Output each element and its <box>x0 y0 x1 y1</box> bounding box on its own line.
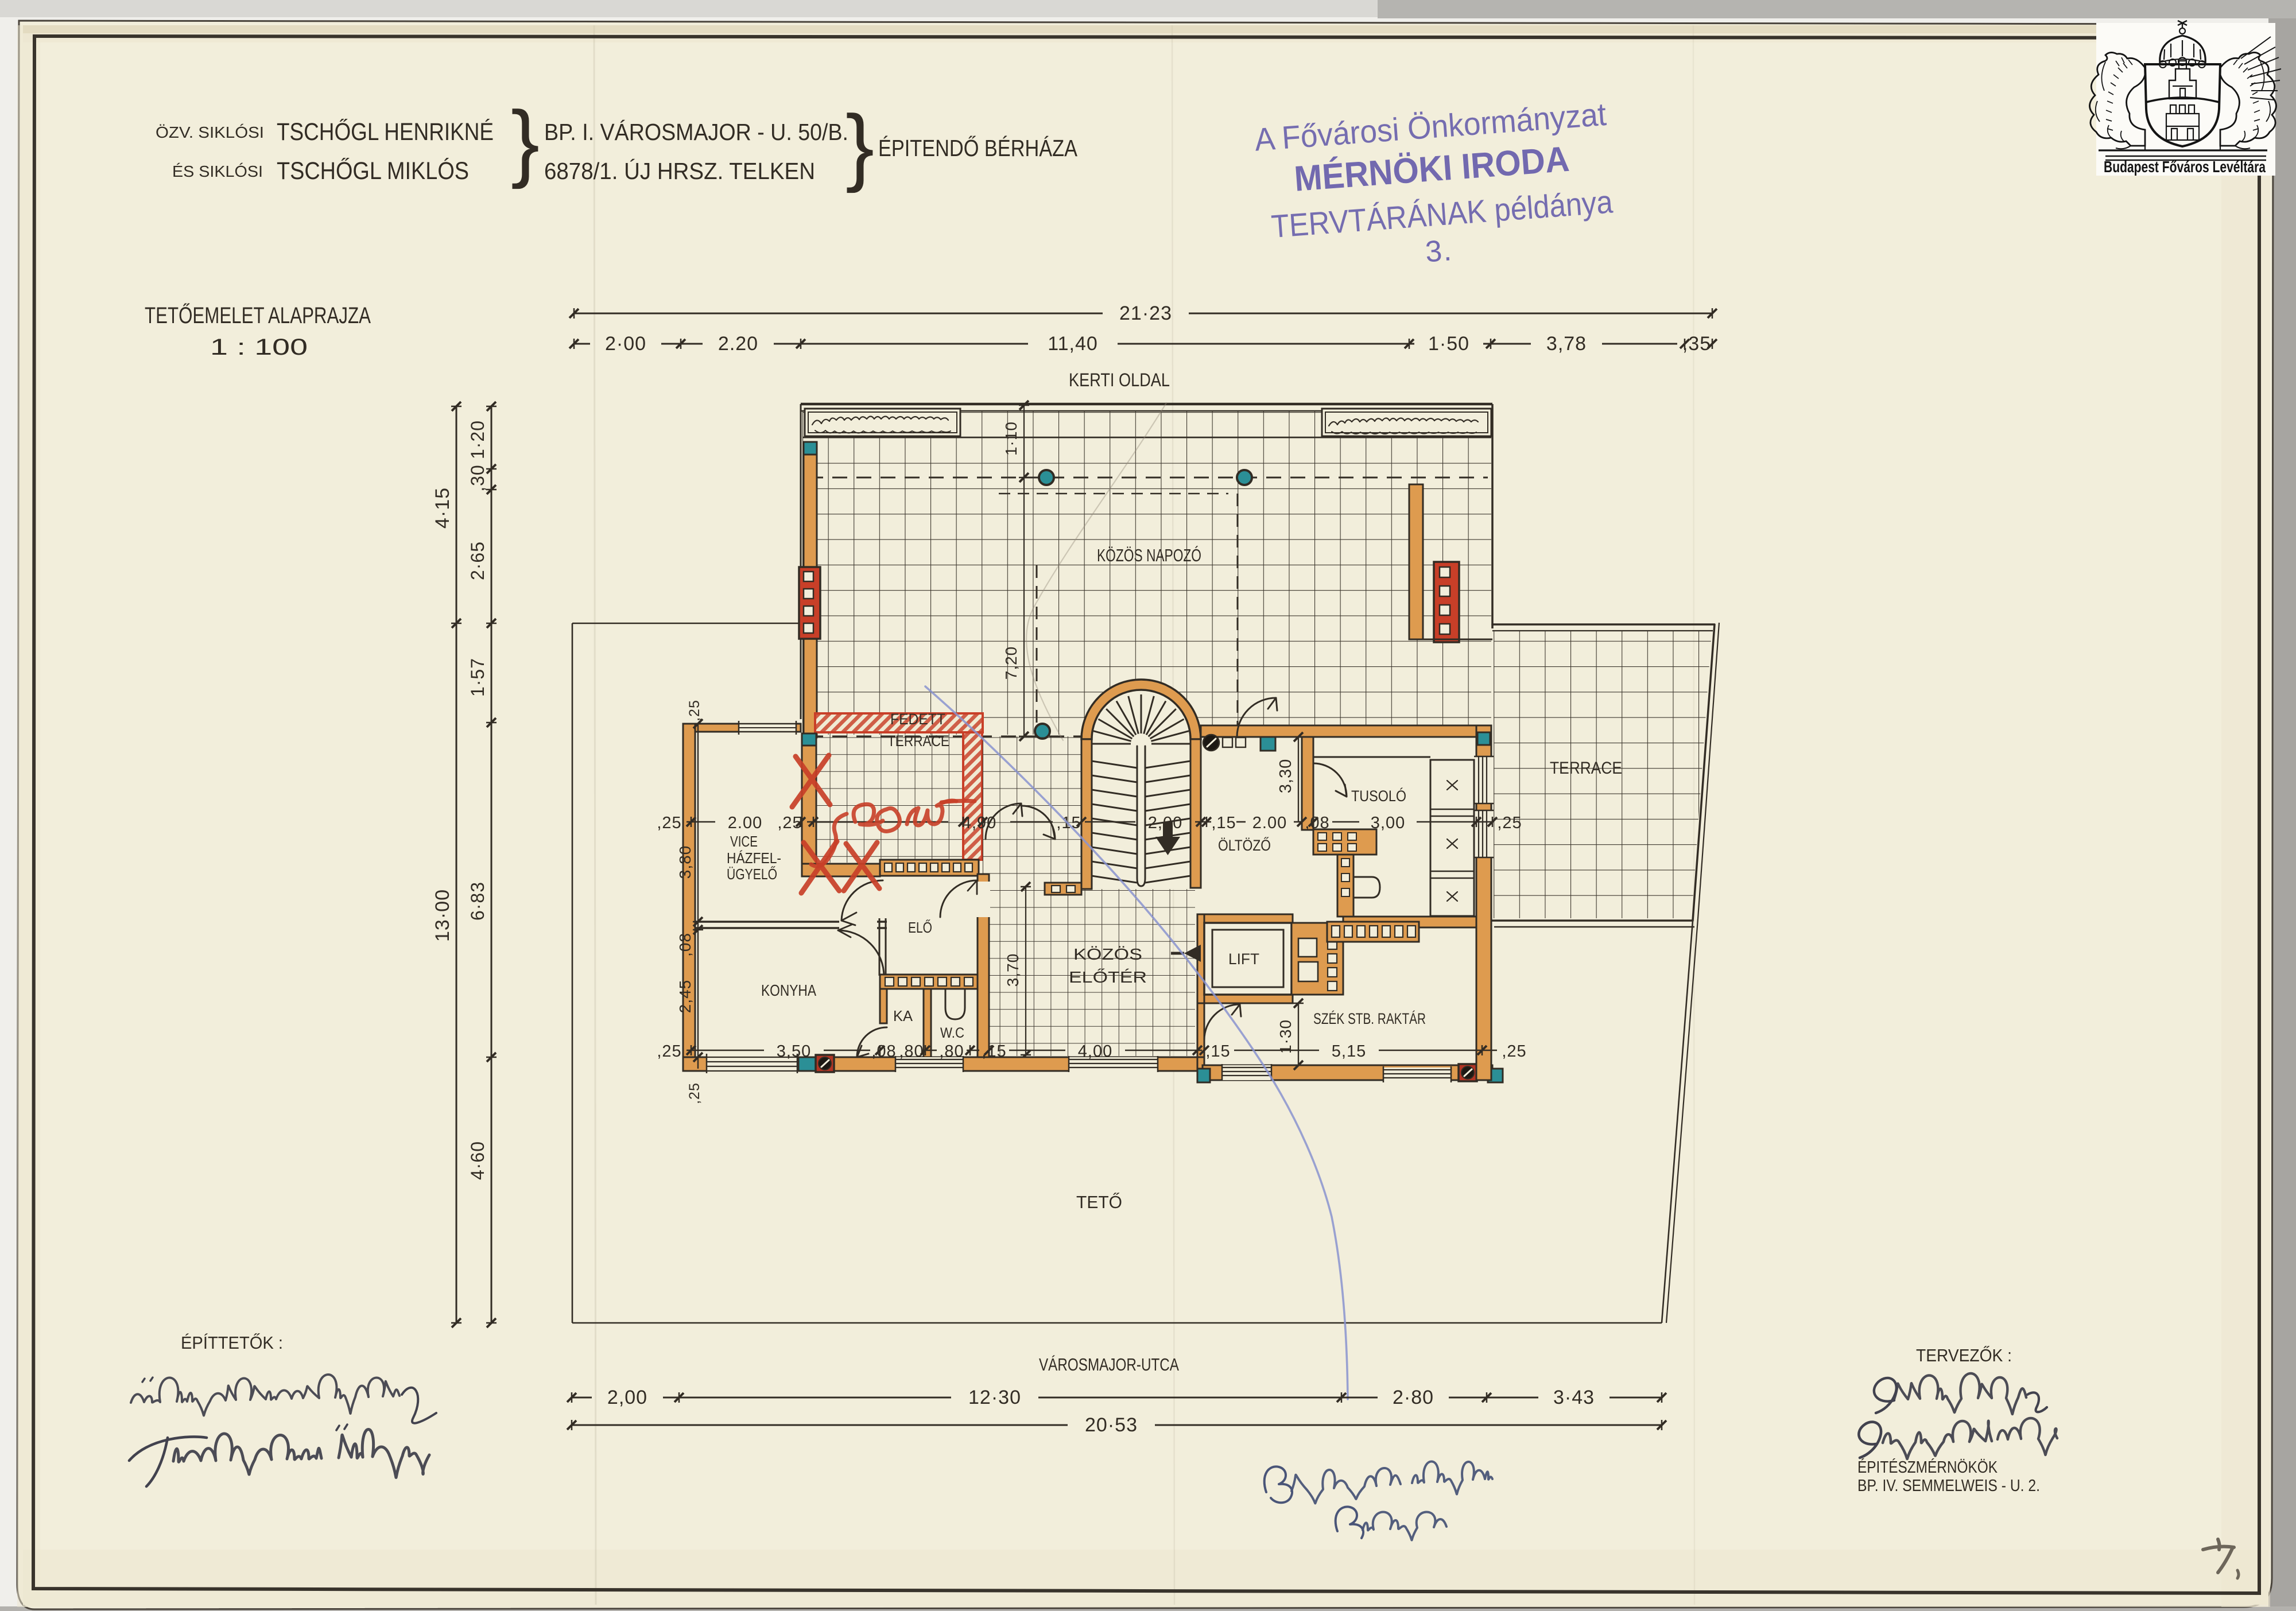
svg-text:ÉS SIKLÓSI: ÉS SIKLÓSI <box>172 162 263 180</box>
svg-text:KONYHA: KONYHA <box>761 981 816 999</box>
svg-text:ÖZV. SIKLÓSI: ÖZV. SIKLÓSI <box>156 123 264 141</box>
svg-text:,25: ,25 <box>1497 814 1522 832</box>
svg-text:,08: ,08 <box>871 1042 896 1061</box>
svg-text:BP. I. VÁROSMAJOR - U. 50/B.: BP. I. VÁROSMAJOR - U. 50/B. <box>544 119 848 145</box>
svg-text:4·15: 4·15 <box>432 487 453 529</box>
svg-text:}: } <box>846 97 874 193</box>
svg-text:5,15: 5,15 <box>1332 1042 1366 1061</box>
svg-text:,25: ,25 <box>657 1042 681 1061</box>
svg-text:ÜGYELŐ: ÜGYELŐ <box>727 865 777 883</box>
svg-text:3,70: 3,70 <box>1004 953 1022 987</box>
svg-text:ELŐTÉR: ELŐTÉR <box>1069 968 1147 986</box>
svg-text:,35: ,35 <box>1682 333 1711 355</box>
svg-text:2.20: 2.20 <box>718 333 758 355</box>
svg-text:21·23: 21·23 <box>1119 302 1172 324</box>
svg-text:KÖZÖS NAPOZÓ: KÖZÖS NAPOZÓ <box>1097 545 1201 565</box>
svg-text:TETŐEMELET ALAPRAJZA: TETŐEMELET ALAPRAJZA <box>145 302 371 328</box>
svg-text:6878/1. ÚJ HRSZ. TELKEN: 6878/1. ÚJ HRSZ. TELKEN <box>544 158 815 184</box>
svg-text:ELŐ: ELŐ <box>908 919 932 936</box>
svg-text:,08: ,08 <box>1305 814 1329 832</box>
svg-text:,25: ,25 <box>687 1082 703 1104</box>
svg-text:,08: ,08 <box>676 933 694 957</box>
svg-text:7,20: 7,20 <box>1002 646 1020 680</box>
svg-text:HÁZFEL-: HÁZFEL- <box>727 849 781 867</box>
svg-text:KÖZÖS: KÖZÖS <box>1073 945 1142 963</box>
svg-text:3,80: 3,80 <box>676 845 694 879</box>
svg-text:LIFT: LIFT <box>1228 950 1259 968</box>
svg-text:BP. IV. SEMMELWEIS - U. 2.: BP. IV. SEMMELWEIS - U. 2. <box>1857 1477 2040 1495</box>
svg-text:,25: ,25 <box>1502 1042 1526 1061</box>
svg-text:2,00: 2,00 <box>607 1387 647 1408</box>
svg-text:,80: ,80 <box>899 1042 924 1061</box>
svg-text:1·20: 1·20 <box>467 420 488 459</box>
svg-text:,25: ,25 <box>657 814 681 832</box>
svg-text:TETŐ: TETŐ <box>1076 1192 1122 1212</box>
svg-text:,30: ,30 <box>467 464 488 491</box>
svg-text:ÉPITÉSZMÉRNÖKÖK: ÉPITÉSZMÉRNÖKÖK <box>1857 1458 1998 1477</box>
svg-text:2,00: 2,00 <box>1148 814 1182 832</box>
svg-text:TERRACE: TERRACE <box>887 732 949 750</box>
svg-text:2,45: 2,45 <box>676 980 694 1014</box>
svg-text:2·80: 2·80 <box>1393 1387 1434 1408</box>
svg-text:2·65: 2·65 <box>467 541 488 580</box>
svg-text:KERTI OLDAL: KERTI OLDAL <box>1069 370 1170 390</box>
svg-text:VÁROSMAJOR-UTCA: VÁROSMAJOR-UTCA <box>1039 1354 1179 1375</box>
svg-text:1·50: 1·50 <box>1428 333 1469 355</box>
svg-text:2.00: 2.00 <box>728 814 762 832</box>
svg-text:TSCHŐGL HENRIKNÉ: TSCHŐGL HENRIKNÉ <box>277 118 494 146</box>
svg-text:6·83: 6·83 <box>467 882 488 921</box>
svg-text:,25: ,25 <box>687 700 703 721</box>
svg-text:SZÉK STB. RAKTÁR: SZÉK STB. RAKTÁR <box>1313 1010 1426 1027</box>
svg-text:1·30: 1·30 <box>1277 1019 1294 1054</box>
svg-text:3,30: 3,30 <box>1277 759 1295 793</box>
svg-text:1·57: 1·57 <box>467 658 488 697</box>
svg-text:ÉPITENDŐ BÉRHÁZA: ÉPITENDŐ BÉRHÁZA <box>878 135 1078 161</box>
svg-text:,15: ,15 <box>982 1042 1006 1061</box>
svg-text:13·00: 13·00 <box>432 889 453 942</box>
svg-text:4·60: 4·60 <box>467 1141 488 1180</box>
svg-text:W.C: W.C <box>940 1025 964 1041</box>
svg-text:11,40: 11,40 <box>1048 333 1098 355</box>
svg-text:}: } <box>511 93 540 189</box>
svg-text:ÖLTÖZŐ: ÖLTÖZŐ <box>1218 836 1271 854</box>
svg-text:TSCHŐGL MIKLÓS: TSCHŐGL MIKLÓS <box>277 157 469 185</box>
svg-text:,15: ,15 <box>1205 1042 1230 1061</box>
svg-text:2.00: 2.00 <box>1252 814 1287 832</box>
svg-text:12·30: 12·30 <box>968 1387 1021 1408</box>
svg-text:3,00: 3,00 <box>1371 814 1405 832</box>
svg-text:3·43: 3·43 <box>1553 1387 1595 1408</box>
svg-text:3,50: 3,50 <box>777 1042 811 1061</box>
svg-text:2·00: 2·00 <box>605 333 646 355</box>
svg-text:KA: KA <box>893 1007 913 1024</box>
svg-text:3,78: 3,78 <box>1546 333 1587 355</box>
svg-text:20·53: 20·53 <box>1085 1414 1138 1436</box>
svg-text:TUSOLÓ: TUSOLÓ <box>1351 787 1406 805</box>
svg-text:,80: ,80 <box>939 1042 964 1061</box>
svg-text:FEDETT: FEDETT <box>890 711 945 728</box>
svg-text:,25: ,25 <box>777 814 802 832</box>
svg-text:TERVEZŐK :: TERVEZŐK : <box>1916 1345 2012 1365</box>
svg-text:VICE: VICE <box>730 833 758 850</box>
svg-text:1·10: 1·10 <box>1002 421 1020 456</box>
svg-text:4,00: 4,00 <box>1078 1042 1112 1061</box>
svg-text:,15: ,15 <box>1211 814 1236 832</box>
svg-text:TERRACE: TERRACE <box>1550 759 1622 778</box>
svg-text:ÉPÍTTETŐK :: ÉPÍTTETŐK : <box>181 1333 283 1353</box>
svg-text:1 : 100: 1 : 100 <box>210 335 308 360</box>
svg-text:4,90: 4,90 <box>962 814 996 832</box>
svg-text:3.: 3. <box>1424 234 1453 269</box>
svg-text:Budapest Főváros Levéltára: Budapest Főváros Levéltára <box>2104 158 2266 176</box>
